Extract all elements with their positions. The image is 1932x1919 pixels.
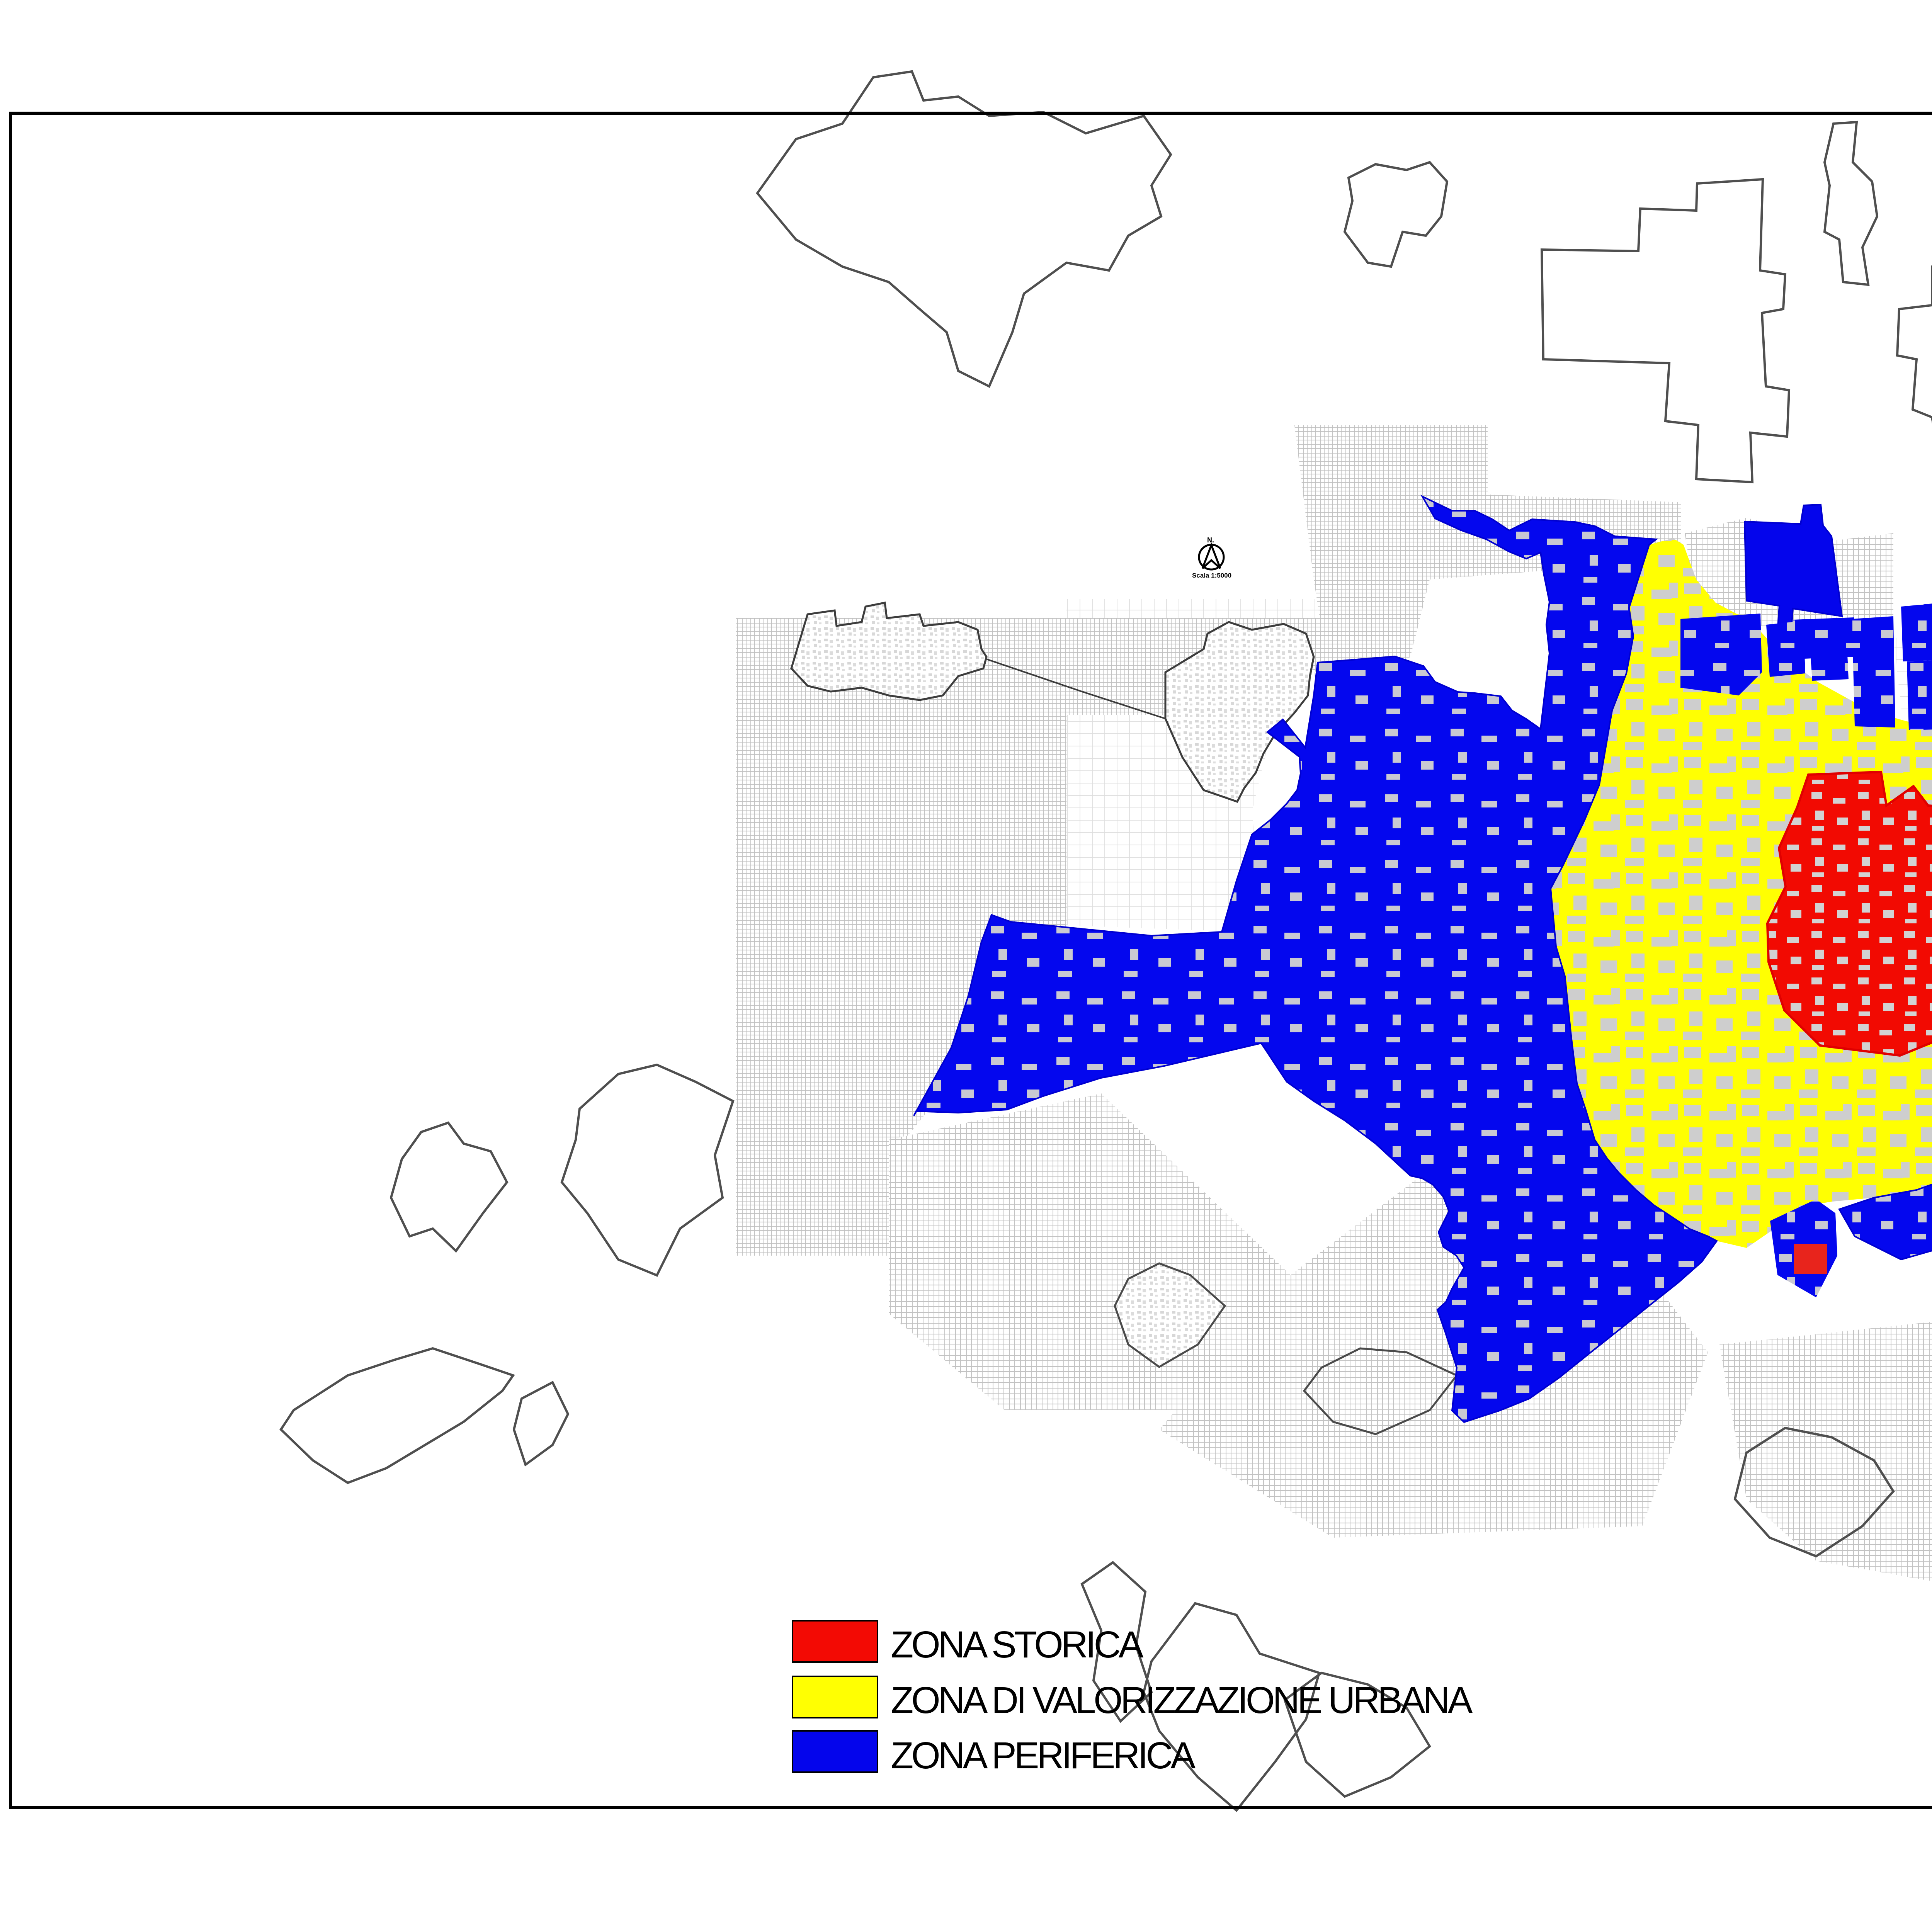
svg-text:ZONA PERIFERICA: ZONA PERIFERICA: [891, 1734, 1196, 1776]
svg-text:ZONA DI VALORIZZAZIONE URBANA: ZONA DI VALORIZZAZIONE URBANA: [891, 1679, 1473, 1721]
svg-text:ZONA STORICA: ZONA STORICA: [891, 1623, 1144, 1666]
svg-text:Scala 1:5000: Scala 1:5000: [1192, 572, 1231, 579]
svg-text:N.: N.: [1207, 536, 1214, 544]
